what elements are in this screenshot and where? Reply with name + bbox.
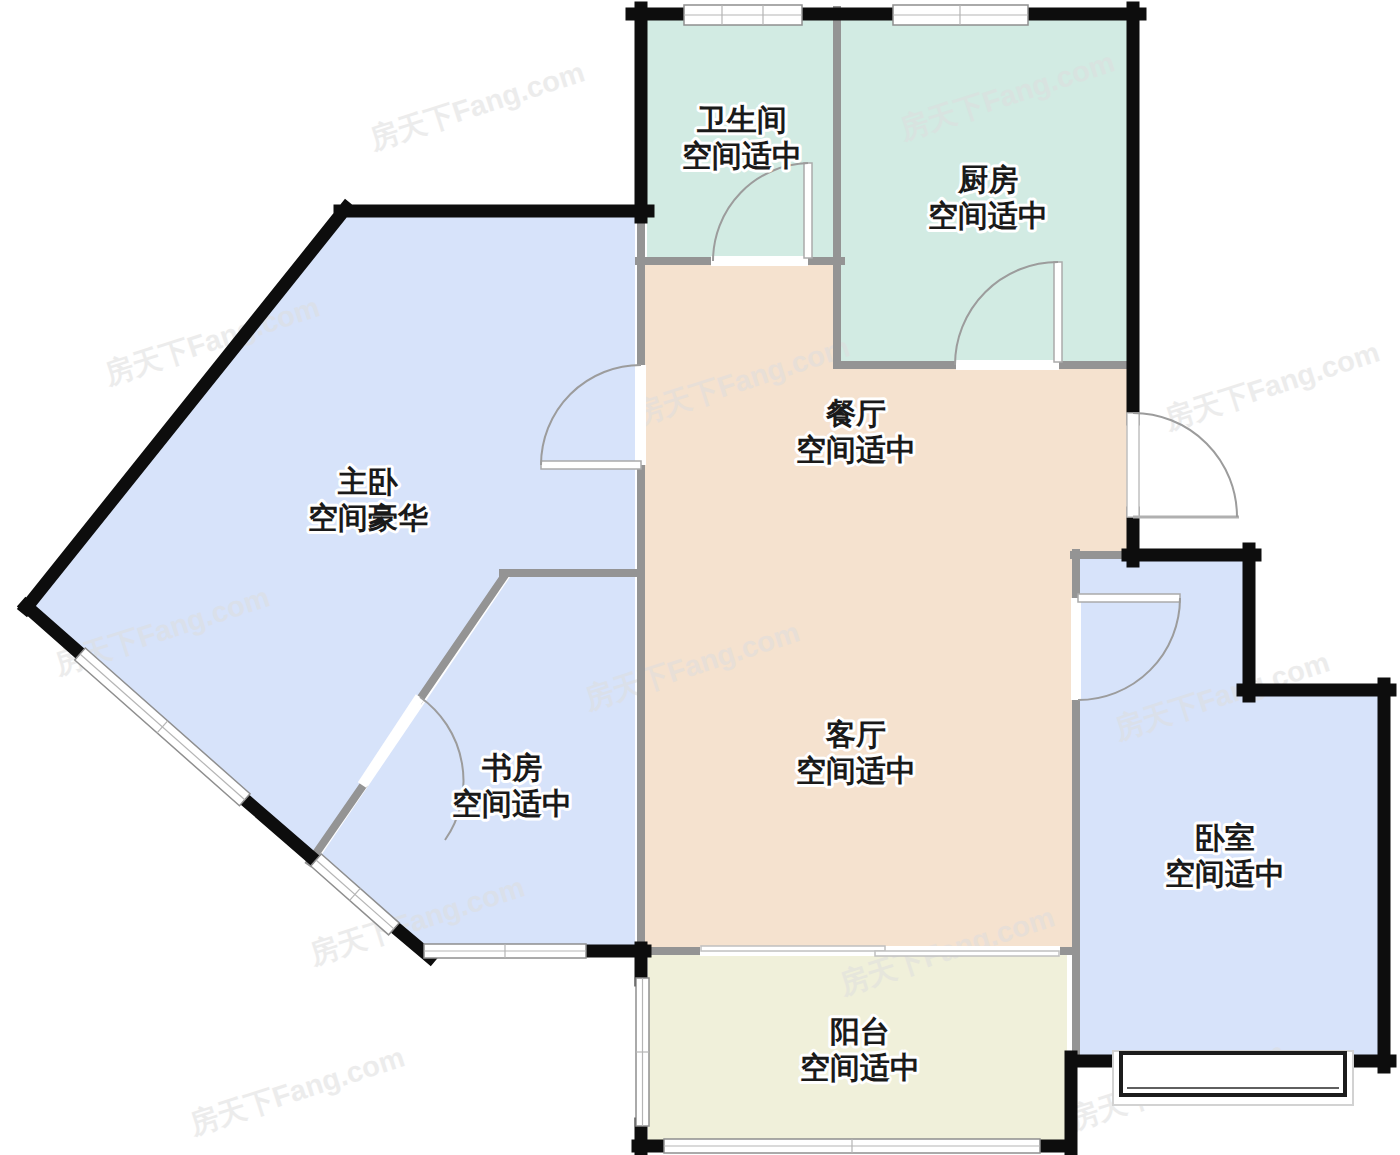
watermark-text: 房天下Fang.com [1160, 336, 1384, 436]
room-areas [29, 14, 1378, 1141]
balcony-side-window-icon [636, 978, 649, 1126]
room-name: 主卧 [337, 465, 399, 498]
bedroom-bay-window-icon [1113, 1051, 1353, 1105]
balcony-sliding-door-panel [875, 951, 1059, 956]
bathroom-window-icon [684, 5, 802, 25]
floorplan-canvas: 房天下Fang.com 房天下Fang.com 房天下Fang.com 房天下F… [0, 0, 1400, 1155]
room-assessment: 空间适中 [928, 199, 1048, 232]
floorplan-page: 房天下Fang.com 房天下Fang.com 房天下Fang.com 房天下F… [0, 0, 1400, 1155]
room-bedroom-area [1080, 557, 1378, 1055]
room-name: 客厅 [825, 718, 886, 751]
master-bedroom-door-leaf-icon [541, 461, 641, 469]
room-assessment: 空间适中 [800, 1051, 920, 1084]
bathroom-door-leaf-icon [804, 163, 812, 258]
room-name: 厨房 [957, 163, 1018, 196]
room-name: 餐厅 [825, 397, 886, 430]
balcony-window-icon [664, 1139, 1040, 1153]
kitchen-window-icon [893, 5, 1028, 25]
room-name: 阳台 [830, 1015, 890, 1048]
bedroom-door-leaf-icon [1078, 594, 1180, 602]
room-name: 卧室 [1195, 821, 1255, 854]
room-name: 书房 [481, 751, 542, 784]
room-assessment: 空间豪华 [308, 501, 428, 534]
watermark-text: 房天下Fang.com [365, 56, 589, 156]
study-window-icon [424, 944, 586, 958]
kitchen-door-opening [956, 360, 1059, 370]
balcony-sliding-door-panel [701, 946, 885, 951]
room-assessment: 空间适中 [452, 787, 572, 820]
room-assessment: 空间适中 [682, 139, 802, 172]
room-assessment: 空间适中 [796, 754, 916, 787]
entry-door-opening [1127, 413, 1139, 517]
bedroom-door-opening [1071, 598, 1081, 700]
master-bedroom-door-opening [636, 365, 646, 465]
room-assessment: 空间适中 [796, 433, 916, 466]
room-name: 卫生间 [696, 103, 787, 136]
watermark-text: 房天下Fang.com [185, 1041, 409, 1141]
bathroom-door-opening [711, 256, 808, 266]
kitchen-door-leaf-icon [1054, 262, 1062, 362]
room-assessment: 空间适中 [1165, 857, 1285, 890]
